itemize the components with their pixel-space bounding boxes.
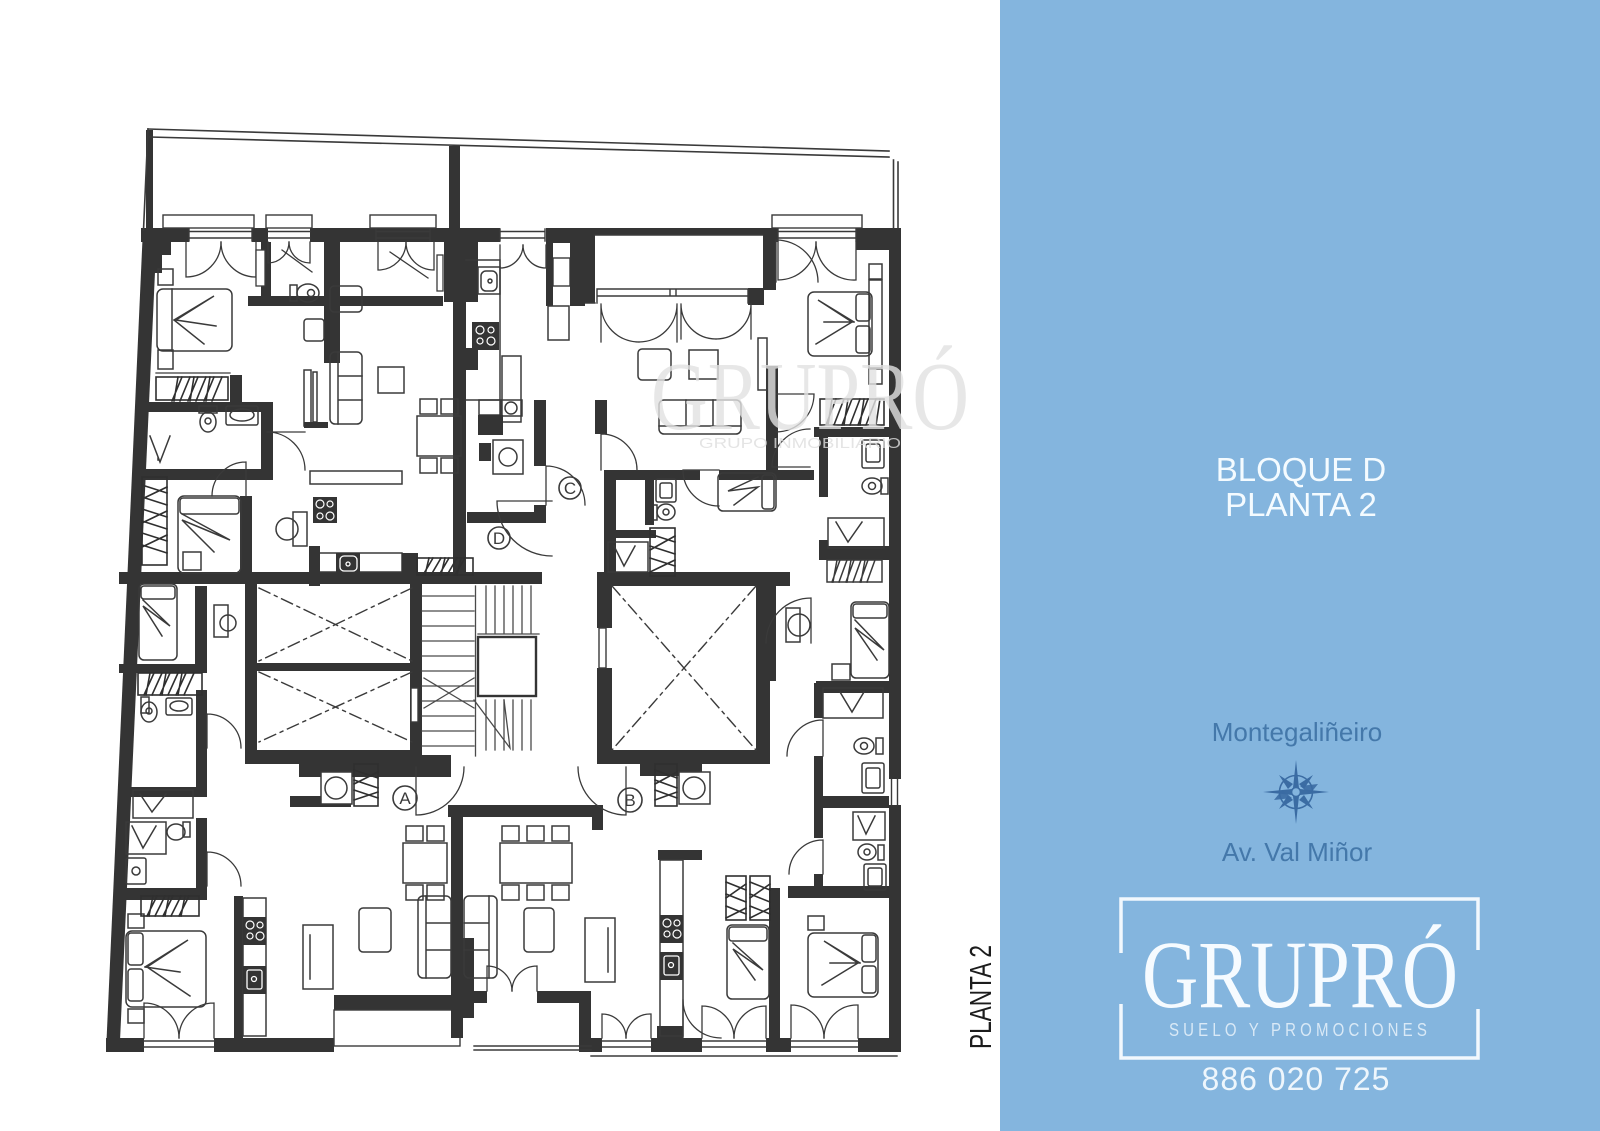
svg-text:C: C — [564, 479, 576, 498]
svg-text:GRUPRÓ: GRUPRÓ — [1142, 921, 1458, 1028]
svg-text:Montegaliñeiro: Montegaliñeiro — [1212, 717, 1383, 747]
svg-text:PLANTA 2: PLANTA 2 — [963, 945, 998, 1049]
svg-text:886 020 725: 886 020 725 — [1202, 1061, 1391, 1097]
svg-text:BLOQUE D: BLOQUE D — [1216, 451, 1387, 488]
svg-text:PLANTA 2: PLANTA 2 — [1225, 486, 1377, 523]
svg-text:A: A — [399, 789, 411, 808]
svg-text:D: D — [493, 529, 505, 548]
svg-text:Av. Val Miñor: Av. Val Miñor — [1222, 837, 1373, 867]
svg-text:SUELO Y PROMOCIONES: SUELO Y PROMOCIONES — [1169, 1020, 1431, 1040]
svg-text:GRUPO INMOBILIARIO: GRUPO INMOBILIARIO — [699, 435, 901, 452]
svg-text:B: B — [624, 791, 635, 810]
